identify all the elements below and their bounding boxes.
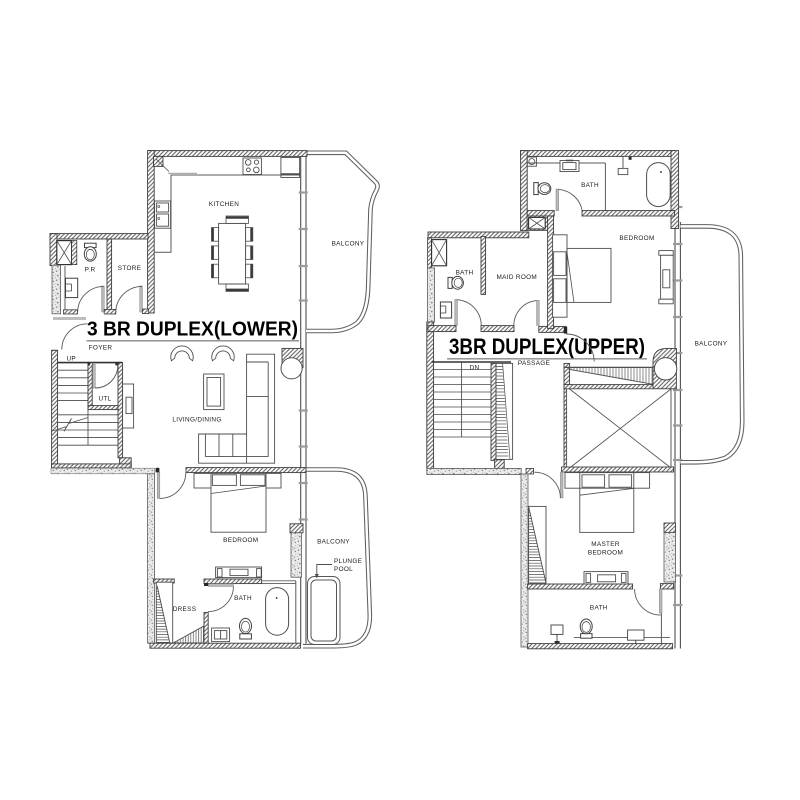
- svg-text:DN: DN: [470, 364, 480, 371]
- svg-text:KITCHEN: KITCHEN: [209, 201, 239, 208]
- svg-text:P.R: P.R: [85, 267, 96, 274]
- svg-text:BALCONY: BALCONY: [332, 241, 365, 248]
- svg-text:UTL: UTL: [98, 396, 111, 403]
- svg-text:BEDROOM: BEDROOM: [588, 550, 623, 557]
- svg-text:BALCONY: BALCONY: [317, 539, 350, 546]
- svg-text:BATH: BATH: [234, 595, 252, 602]
- svg-text:POOL: POOL: [334, 566, 353, 573]
- svg-text:FOYER: FOYER: [89, 345, 113, 352]
- svg-text:PLUNGE: PLUNGE: [334, 558, 362, 565]
- svg-text:BATH: BATH: [590, 605, 608, 612]
- svg-text:3BR DUPLEX(UPPER): 3BR DUPLEX(UPPER): [449, 334, 645, 359]
- svg-text:MASTER: MASTER: [591, 541, 620, 548]
- svg-text:UP: UP: [67, 356, 77, 363]
- svg-text:BEDROOM: BEDROOM: [619, 235, 654, 242]
- svg-text:MAID ROOM: MAID ROOM: [497, 274, 538, 281]
- svg-text:DRESS: DRESS: [173, 606, 197, 613]
- svg-text:BEDROOM: BEDROOM: [223, 537, 258, 544]
- svg-text:PASSAGE: PASSAGE: [518, 360, 550, 367]
- svg-text:STORE: STORE: [118, 265, 142, 272]
- svg-text:BATH: BATH: [581, 182, 599, 189]
- svg-text:3 BR DUPLEX(LOWER): 3 BR DUPLEX(LOWER): [87, 318, 298, 341]
- svg-text:LIVING/DINING: LIVING/DINING: [172, 417, 221, 424]
- svg-text:BALCONY: BALCONY: [695, 341, 728, 348]
- svg-text:BATH: BATH: [456, 270, 474, 277]
